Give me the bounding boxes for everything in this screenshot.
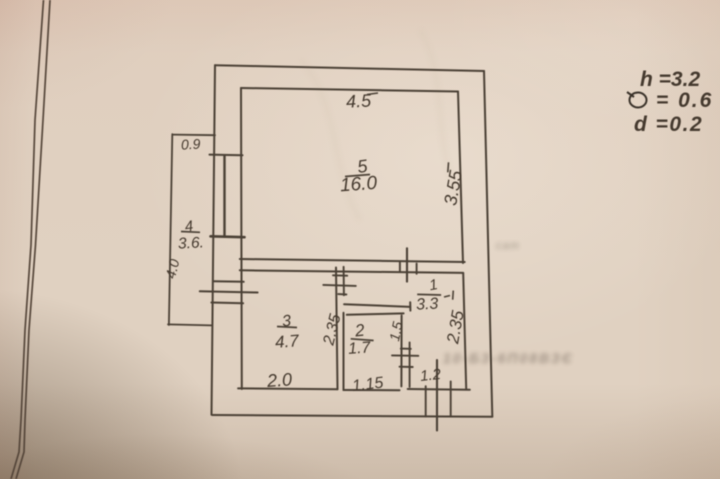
svg-text:4.7: 4.7 [274,331,299,352]
svg-text:d =0.2: d =0.2 [634,113,703,136]
svg-text:16.0: 16.0 [339,173,378,197]
svg-text:0.9: 0.9 [181,136,201,153]
svg-text:1: 1 [428,276,439,294]
svg-text:10-Б3-6П08ВЗЄ: 10-Б3-6П08ВЗЄ [443,350,574,366]
svg-text:2.35: 2.35 [320,312,344,347]
svg-text:1.2: 1.2 [419,366,442,385]
svg-text:1.5: 1.5 [386,320,406,343]
svg-text:4.0: 4.0 [162,257,182,280]
svg-text:3.3: 3.3 [416,296,439,314]
svg-text:сат: сат [496,240,520,252]
svg-text:1.7: 1.7 [348,339,372,358]
svg-text:3.55: 3.55 [440,168,466,207]
svg-text:4: 4 [184,218,195,236]
svg-text:= 0.6: = 0.6 [656,89,713,112]
svg-text:h =3.2: h =3.2 [640,68,700,91]
svg-text:2.0: 2.0 [265,369,292,391]
svg-text:1.15: 1.15 [351,374,384,395]
svg-text:2: 2 [353,321,366,341]
svg-text:3.6.: 3.6. [178,234,205,252]
